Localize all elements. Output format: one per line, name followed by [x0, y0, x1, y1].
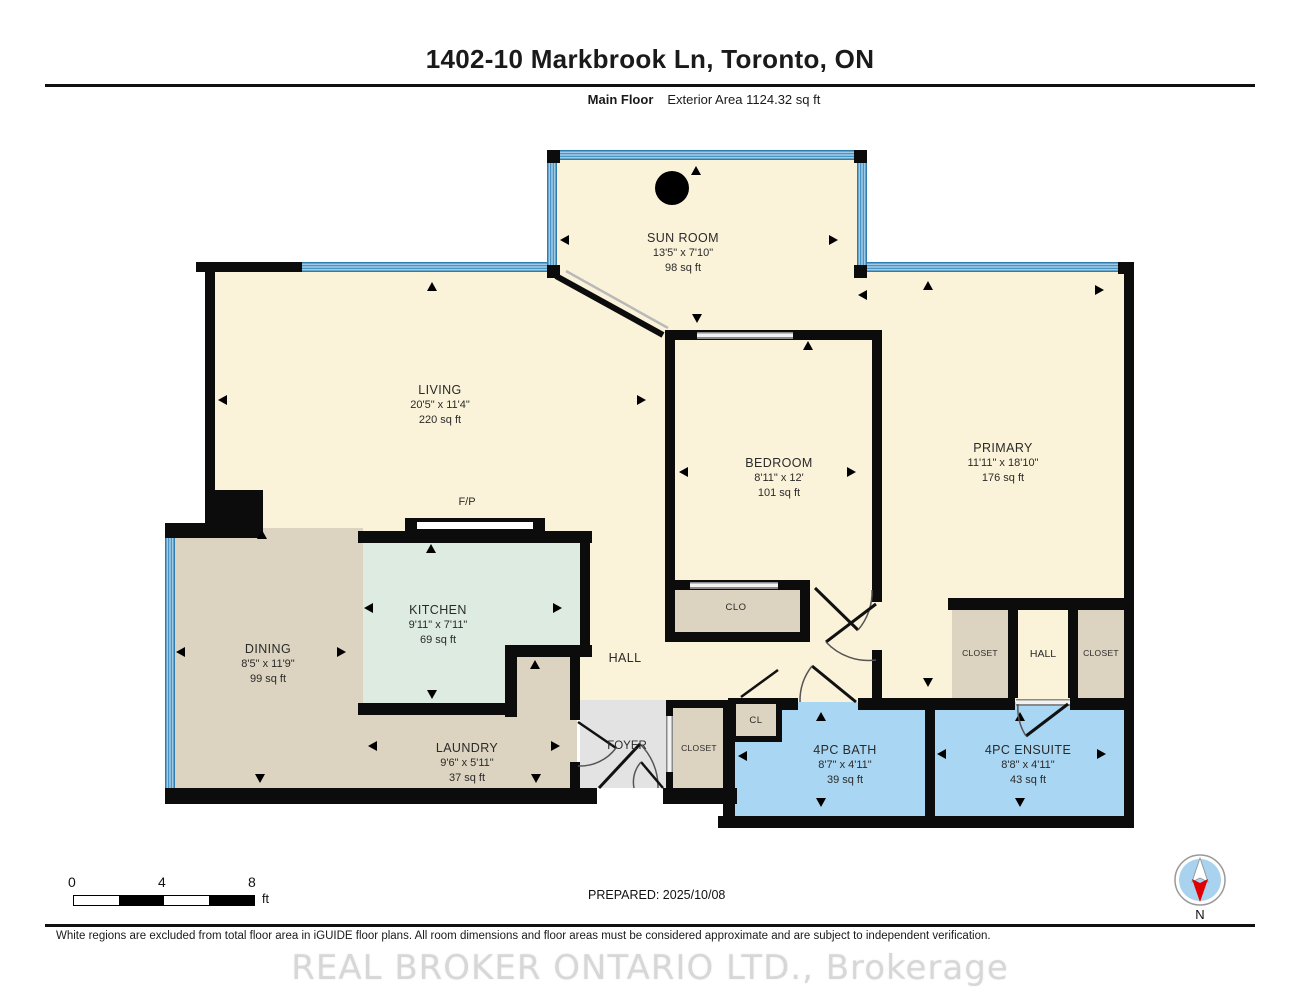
scale-tick-4: 4	[158, 874, 166, 890]
disclaimer-text: White regions are excluded from total fl…	[56, 930, 991, 942]
sliding-door-bedroom	[697, 332, 793, 339]
wall-closet-foyer-top	[666, 700, 730, 708]
wall	[570, 657, 580, 720]
measure-arrow	[816, 798, 826, 807]
sliding-door-hall-right	[1016, 699, 1070, 706]
measure-arrow	[426, 544, 436, 553]
window-sunroom-top	[560, 150, 854, 160]
window-sunroom-left	[547, 163, 557, 265]
measure-arrow	[255, 774, 265, 783]
scale-segment	[209, 896, 254, 905]
scale-segment	[164, 896, 209, 905]
footer-divider	[45, 924, 1255, 927]
label-living: LIVING 20'5" x 11'4" 220 sq ft	[350, 382, 530, 427]
entry-door-gap	[597, 788, 663, 804]
measure-arrow	[530, 660, 540, 669]
measure-arrow	[923, 281, 933, 290]
scale-segment	[74, 896, 119, 905]
floor-plan-page: 1402-10 Markbrook Ln, Toronto, ON Main F…	[0, 0, 1300, 1005]
measure-arrow	[427, 282, 437, 291]
wall-kitchen-bottom	[358, 703, 517, 715]
measure-arrow	[218, 395, 227, 405]
window-primary-top	[867, 262, 1120, 272]
compass-north-label: N	[1172, 907, 1228, 922]
brokerage-watermark: REAL BROKER ONTARIO LTD., Brokerage	[0, 948, 1300, 988]
compass: N	[1172, 852, 1228, 929]
wall	[547, 265, 560, 278]
label-closet-foyer: CLOSET	[669, 743, 729, 754]
scale-unit: ft	[262, 892, 269, 906]
sliding-door-clo	[690, 582, 778, 589]
label-hall-main: HALL	[575, 650, 675, 666]
window-living-top	[302, 262, 548, 272]
label-foyer: FOYER	[587, 739, 667, 754]
wall-clo-right	[800, 580, 810, 642]
label-primary: PRIMARY 11'11" x 18'10" 176 sq ft	[913, 440, 1093, 485]
window-dining-left	[165, 538, 175, 788]
wall-clo-bottom	[665, 632, 810, 642]
header-divider	[45, 84, 1255, 87]
measure-arrow	[679, 467, 688, 477]
measure-arrow	[553, 603, 562, 613]
scale-tick-8: 8	[248, 874, 256, 890]
label-fireplace: F/P	[437, 495, 497, 509]
fireplace	[405, 518, 545, 533]
measure-arrow	[427, 690, 437, 699]
room-laundry-arm	[517, 657, 575, 709]
label-closet-right-2: CLOSET	[1074, 648, 1128, 659]
label-bath: 4PC BATH 8'7" x 4'11" 39 sq ft	[755, 742, 935, 787]
scale-bar	[73, 895, 255, 906]
prepared-date: PREPARED: 2025/10/08	[588, 888, 725, 902]
wall	[1070, 698, 1124, 710]
page-title: 1402-10 Markbrook Ln, Toronto, ON	[0, 44, 1300, 75]
wall	[858, 698, 1015, 710]
measure-arrow	[368, 741, 377, 751]
label-hall-right: HALL	[1013, 648, 1073, 662]
floor-subtitle: Main FloorExterior Area 1124.32 sq ft	[454, 92, 954, 107]
scale-tick-0: 0	[68, 874, 76, 890]
measure-arrow	[692, 314, 702, 323]
measure-arrow	[923, 678, 933, 687]
label-laundry: LAUNDRY 9'6" x 5'11" 37 sq ft	[377, 740, 557, 785]
wall	[854, 150, 867, 163]
wall	[547, 150, 560, 163]
measure-arrow	[803, 341, 813, 350]
wall	[854, 265, 867, 278]
measure-arrow	[816, 712, 826, 721]
wall-closet-row-top	[948, 598, 1124, 610]
column-circle	[655, 171, 689, 205]
label-kitchen: KITCHEN 9'11" x 7'11" 69 sq ft	[348, 602, 528, 647]
label-dining: DINING 8'5" x 11'9" 99 sq ft	[178, 641, 358, 686]
label-closet-right-1: CLOSET	[952, 648, 1008, 659]
wall	[570, 762, 580, 788]
wall-bedroom-left	[665, 333, 675, 640]
measure-arrow	[1095, 285, 1104, 295]
scale-segment	[119, 896, 164, 905]
measure-arrow	[637, 395, 646, 405]
measure-arrow	[738, 751, 747, 761]
wall-kitchen-right	[580, 543, 590, 647]
label-clo: CLO	[696, 602, 776, 614]
fireplace-inset	[417, 522, 533, 529]
wall-outer-right	[1124, 262, 1134, 828]
label-sun-room: SUN ROOM 13'5" x 7'10" 98 sq ft	[593, 230, 773, 275]
label-cl: CL	[736, 715, 776, 727]
label-ensuite: 4PC ENSUITE 8'8" x 4'11" 43 sq ft	[938, 742, 1118, 787]
wall-outer-left	[205, 262, 215, 492]
wall	[165, 523, 263, 538]
exterior-area-label: Exterior Area 1124.32 sq ft	[667, 92, 820, 107]
floor-label: Main Floor	[588, 92, 654, 107]
measure-arrow	[1015, 712, 1025, 721]
measure-arrow	[829, 235, 838, 245]
measure-arrow	[1015, 798, 1025, 807]
wall-bedroom-right	[872, 330, 882, 602]
measure-arrow	[257, 530, 267, 539]
label-bedroom: BEDROOM 8'11" x 12' 101 sq ft	[689, 455, 869, 500]
window-sunroom-right	[857, 163, 867, 265]
measure-arrow	[560, 235, 569, 245]
measure-arrow	[858, 290, 867, 300]
measure-arrow	[691, 166, 701, 175]
